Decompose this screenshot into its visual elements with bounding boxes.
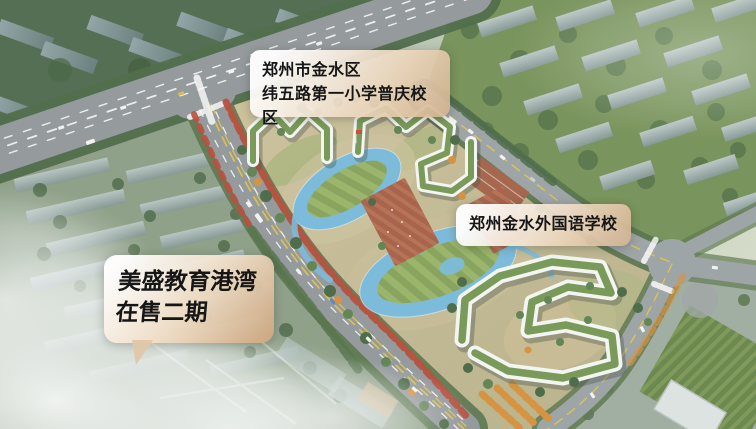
label-primary-line2: 纬五路第一小学普庆校区	[262, 83, 438, 131]
label-primary-school: 郑州市金水区 纬五路第一小学普庆校区	[250, 50, 450, 117]
aerial-render-scene: 郑州市金水区 纬五路第一小学普庆校区 郑州金水外国语学校 美盛教育港湾 在售二期	[0, 0, 756, 429]
project-callout-bubble: 美盛教育港湾 在售二期	[104, 255, 274, 343]
project-name: 美盛教育港湾	[117, 266, 264, 297]
project-status: 在售二期	[114, 297, 261, 328]
label-foreign-text: 郑州金水外国语学校	[469, 216, 618, 233]
label-primary-line1: 郑州市金水区	[262, 59, 438, 83]
label-foreign-language-school: 郑州金水外国语学校	[456, 204, 631, 246]
